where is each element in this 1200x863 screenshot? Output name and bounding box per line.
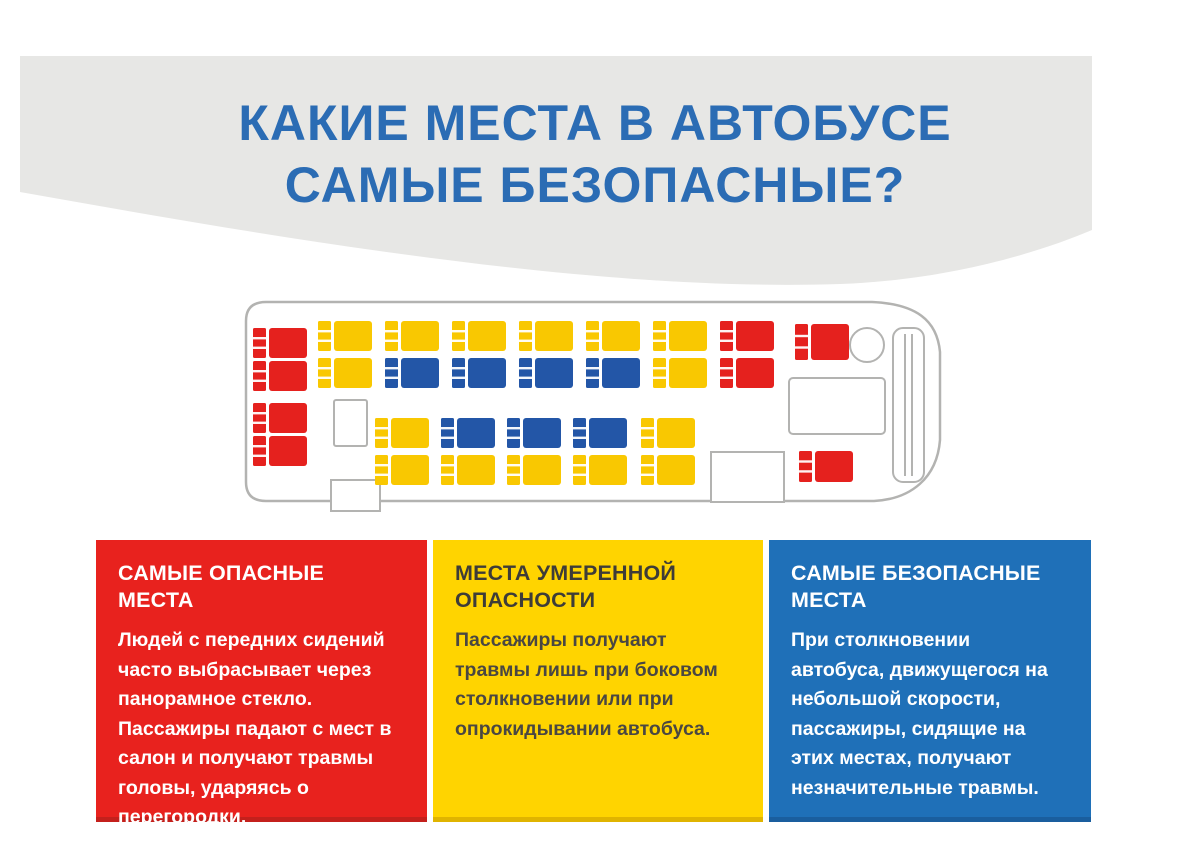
seat-yellow bbox=[641, 418, 695, 448]
seat-blue bbox=[441, 418, 495, 448]
card-text: При столкновении автобуса, движущегося н… bbox=[791, 626, 1067, 803]
card-title: САМЫЕ БЕЗОПАСНЫЕ МЕСТА bbox=[791, 560, 1067, 614]
seat-red bbox=[253, 436, 307, 466]
card-text: Людей с передних сидений часто выбрасыва… bbox=[118, 626, 403, 833]
bus-diagram bbox=[240, 292, 950, 517]
seat-red bbox=[795, 324, 849, 360]
seat-yellow bbox=[375, 455, 429, 485]
seat-red bbox=[799, 451, 853, 482]
front-door-step bbox=[711, 452, 784, 502]
seat-red bbox=[253, 403, 307, 433]
seat-blue bbox=[519, 358, 573, 388]
card-most-dangerous: САМЫЕ ОПАСНЫЕ МЕСТА Людей с передних сид… bbox=[96, 540, 427, 822]
seat-yellow bbox=[519, 321, 573, 351]
seat-yellow bbox=[318, 321, 372, 351]
front-panel bbox=[893, 328, 924, 482]
seat-blue bbox=[452, 358, 506, 388]
seat-yellow bbox=[586, 321, 640, 351]
rear-door-step bbox=[331, 480, 380, 511]
seat-red bbox=[720, 321, 774, 351]
card-moderate-danger: МЕСТА УМЕРЕННОЙ ОПАСНОСТИ Пассажиры полу… bbox=[433, 540, 763, 822]
title-line-1: КАКИЕ МЕСТА В АВТОБУСЕ bbox=[238, 95, 951, 151]
seat-yellow bbox=[653, 321, 707, 351]
seat-blue bbox=[573, 418, 627, 448]
bus-safety-infographic: КАКИЕ МЕСТА В АВТОБУСЕ САМЫЕ БЕЗОПАСНЫЕ?… bbox=[0, 0, 1200, 863]
rear-door-well bbox=[334, 400, 367, 446]
seat-red bbox=[253, 361, 307, 391]
seat-blue bbox=[586, 358, 640, 388]
seat-yellow bbox=[641, 455, 695, 485]
legend-cards: САМЫЕ ОПАСНЫЕ МЕСТА Людей с передних сид… bbox=[0, 540, 1200, 822]
seat-red bbox=[253, 328, 307, 358]
seat-yellow bbox=[318, 358, 372, 388]
seat-red bbox=[720, 358, 774, 388]
steering-wheel-icon bbox=[850, 328, 884, 362]
card-title: МЕСТА УМЕРЕННОЙ ОПАСНОСТИ bbox=[455, 560, 739, 614]
seat-yellow bbox=[452, 321, 506, 351]
seat-yellow bbox=[507, 455, 561, 485]
seat-yellow bbox=[653, 358, 707, 388]
card-text: Пассажиры получают травмы лишь при боков… bbox=[455, 626, 739, 744]
card-safest: САМЫЕ БЕЗОПАСНЫЕ МЕСТА При столкновении … bbox=[769, 540, 1091, 822]
title-line-2: САМЫЕ БЕЗОПАСНЫЕ? bbox=[285, 157, 906, 213]
seat-yellow bbox=[385, 321, 439, 351]
engine-box bbox=[789, 378, 885, 434]
seat-blue bbox=[507, 418, 561, 448]
seat-yellow bbox=[441, 455, 495, 485]
seat-blue bbox=[385, 358, 439, 388]
seat-yellow bbox=[573, 455, 627, 485]
card-title: САМЫЕ ОПАСНЫЕ МЕСТА bbox=[118, 560, 403, 614]
page-title: КАКИЕ МЕСТА В АВТОБУСЕ САМЫЕ БЕЗОПАСНЫЕ? bbox=[0, 92, 1190, 216]
seat-yellow bbox=[375, 418, 429, 448]
